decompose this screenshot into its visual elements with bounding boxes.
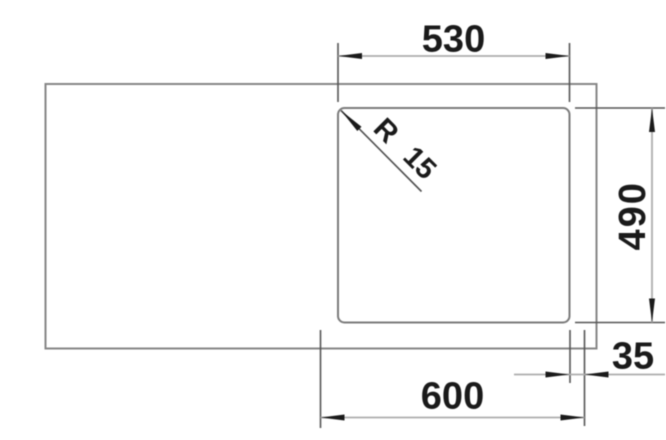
svg-text:490: 490 [612,181,654,250]
svg-text:600: 600 [421,376,484,418]
svg-text:35: 35 [612,336,654,378]
svg-text:530: 530 [422,19,485,61]
